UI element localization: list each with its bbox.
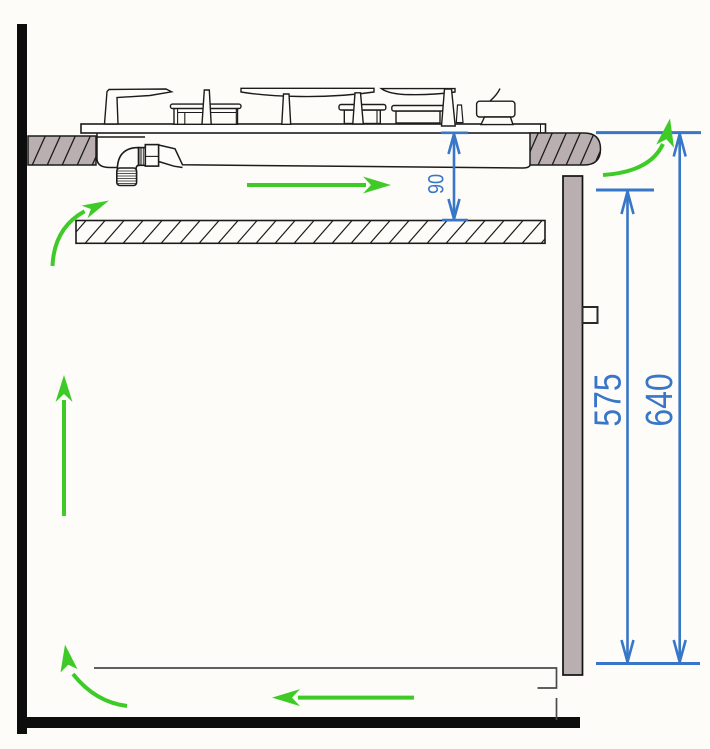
- svg-text:640: 640: [638, 373, 680, 426]
- svg-text:575: 575: [587, 373, 629, 426]
- svg-text:90: 90: [425, 174, 449, 194]
